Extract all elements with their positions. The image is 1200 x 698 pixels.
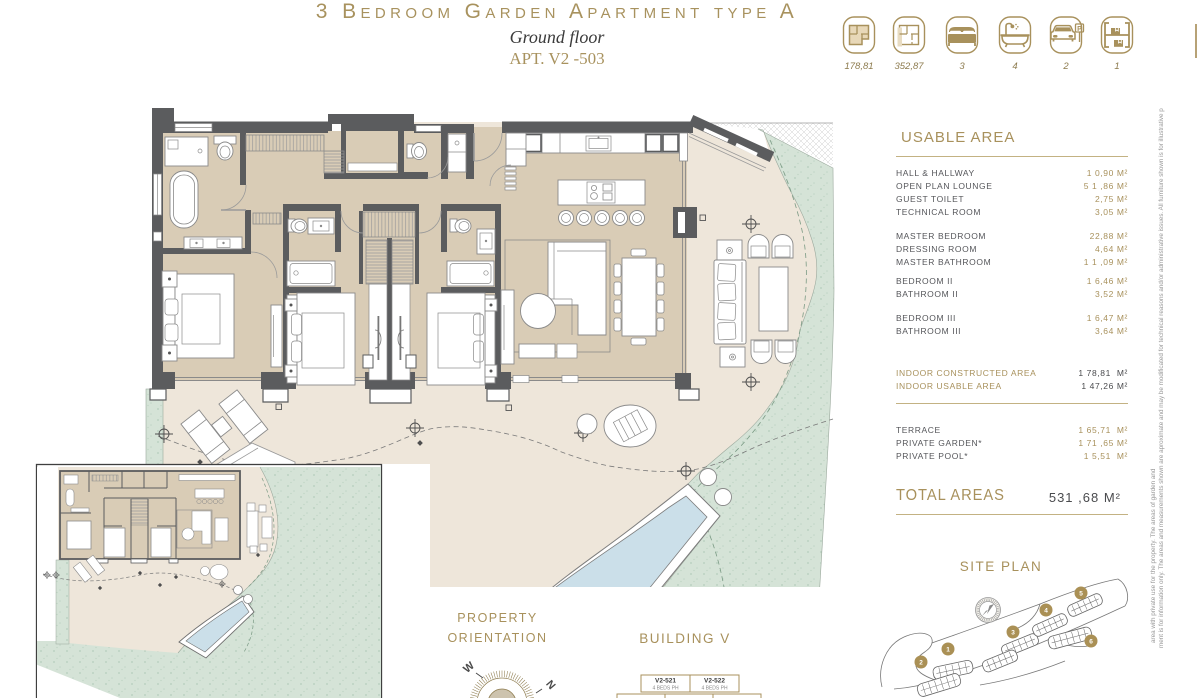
svg-text:W: W (461, 659, 477, 675)
svg-text:6: 6 (1089, 638, 1093, 645)
svg-text:1: 1 (946, 646, 950, 653)
svg-text:V2-521: V2-521 (655, 678, 676, 685)
svg-text:4 BEDS PH: 4 BEDS PH (652, 686, 679, 692)
svg-text:1: 1 (1114, 61, 1119, 72)
svg-text:3: 3 (959, 61, 965, 72)
svg-text:4 BEDS PH: 4 BEDS PH (701, 686, 728, 692)
svg-text:2: 2 (1062, 61, 1069, 72)
svg-text:178,81: 178,81 (844, 61, 873, 72)
svg-text:P: P (1077, 26, 1082, 33)
svg-text:4: 4 (1012, 61, 1017, 72)
svg-text:3: 3 (1011, 629, 1015, 636)
svg-text:N: N (543, 678, 557, 692)
svg-text:352,87: 352,87 (894, 61, 924, 72)
svg-text:2: 2 (919, 659, 923, 666)
svg-text:5: 5 (1079, 590, 1083, 597)
svg-text:V2-522: V2-522 (704, 678, 725, 685)
svg-text:4: 4 (1044, 607, 1048, 614)
